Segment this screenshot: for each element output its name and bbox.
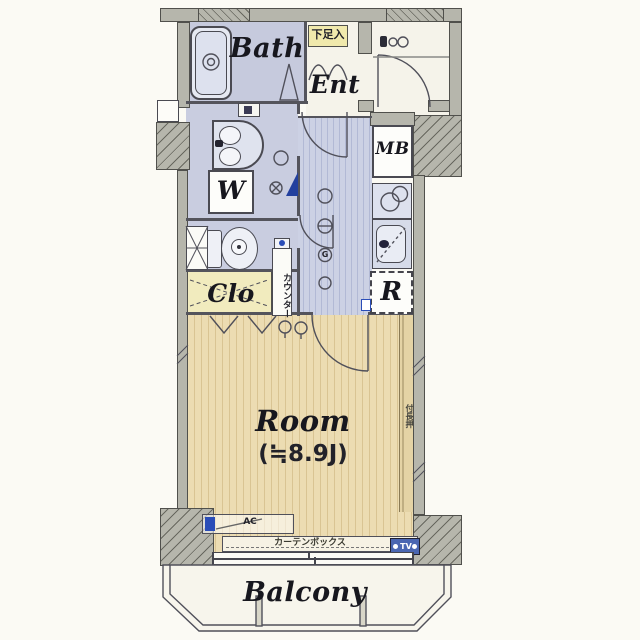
closet-label: Clo bbox=[198, 281, 264, 306]
bath-label: Bath bbox=[228, 35, 306, 62]
wall-right-upper bbox=[449, 22, 462, 117]
counter-label: カウンター bbox=[274, 256, 290, 334]
room-label: Room bbox=[238, 407, 368, 436]
toilet-fan-dot bbox=[237, 245, 241, 249]
wall-left-mid bbox=[177, 170, 188, 515]
partition-toilet-top bbox=[186, 218, 298, 221]
wall-left-block bbox=[156, 122, 190, 170]
tv-label: TV bbox=[398, 543, 414, 551]
nageshi-label: 付長押 bbox=[402, 386, 413, 446]
balcony-window-rail bbox=[212, 558, 414, 560]
counter-faucet-dot bbox=[279, 240, 285, 246]
wall-top-hatch-left bbox=[198, 8, 250, 22]
wall-bottom-right-block bbox=[413, 515, 462, 565]
pipe-space-box bbox=[157, 100, 179, 122]
room-size-label: (≒8.9J) bbox=[234, 443, 372, 466]
shoebox-label: 下足入 bbox=[306, 29, 350, 40]
floorplan: Bath Ent 下足入 MB W Clo カウンター R G Room (≒8… bbox=[0, 0, 640, 640]
partition-ent-corridor bbox=[298, 116, 372, 118]
wall-right-mid bbox=[413, 175, 425, 515]
kitchen-faucet bbox=[379, 240, 389, 248]
partition-washroom-c bbox=[297, 248, 300, 316]
water-heater-button bbox=[244, 106, 252, 114]
wall-right-block bbox=[413, 115, 462, 177]
vanity-faucet bbox=[215, 140, 223, 147]
ent-label: Ent bbox=[303, 72, 367, 97]
vanity-bowl-bottom bbox=[219, 147, 241, 166]
wall-stub-ent-lower bbox=[358, 100, 374, 112]
wall-above-mb bbox=[370, 112, 415, 126]
curtain-box-label: カーテンボックス bbox=[262, 539, 358, 548]
window-tick-mid-a bbox=[308, 552, 310, 560]
washer-label: W bbox=[208, 178, 254, 203]
kitchen-corridor-floor bbox=[298, 118, 372, 318]
window-tick-right bbox=[412, 552, 414, 565]
fridge-label: R bbox=[370, 279, 413, 305]
stove bbox=[372, 183, 412, 219]
doorbell-icon bbox=[380, 36, 387, 47]
toilet-pipe-space bbox=[186, 226, 208, 270]
window-tick-left bbox=[212, 552, 214, 565]
balcony-label: Balcony bbox=[238, 579, 372, 606]
partition-room-top-left bbox=[186, 312, 313, 315]
wall-left-upper bbox=[177, 22, 190, 108]
meter-box-label: MB bbox=[372, 141, 413, 158]
bathtub-inner bbox=[195, 31, 227, 95]
ac-label: AC bbox=[238, 518, 262, 527]
wall-top-hatch-right bbox=[386, 8, 444, 22]
gas-outlet-label: G bbox=[320, 251, 330, 259]
toilet-tank bbox=[206, 230, 222, 268]
partition-washroom-a bbox=[297, 104, 300, 114]
wall-stub-doorstop bbox=[428, 100, 450, 112]
window-tick-mid-b bbox=[314, 557, 316, 565]
partition-washroom-b bbox=[297, 156, 300, 216]
wall-stub-ent-left bbox=[358, 22, 372, 54]
ac-outlet bbox=[205, 517, 215, 531]
